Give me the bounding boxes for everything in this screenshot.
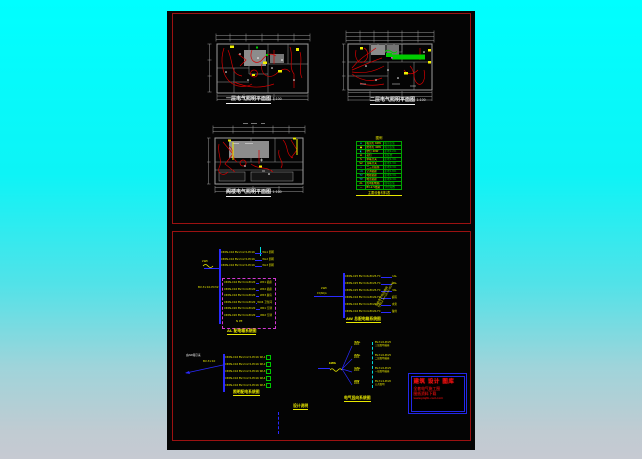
circuit-row: C65N-C16 BV-3×2.5-PC16WL3 照明 xyxy=(221,263,274,269)
circuit-tag: 1AL xyxy=(392,276,397,279)
circuit-tag: WK2 空调 xyxy=(260,315,272,318)
branch-meter: kWh xyxy=(354,357,369,360)
riser-branch: 3ALkWh xyxy=(354,341,369,347)
circuit-spec: C65N-C16 BV-3×4-PC20 xyxy=(224,282,255,285)
circuit-row: C65N-C16 BV-2×2.5-PC16WL1 照明 xyxy=(221,250,274,256)
circuit-row: C65N-C16 BV-3×2.5-PC16WL4 xyxy=(225,376,271,382)
plan3-caption-text: 阁楼电气照明平面图 xyxy=(226,189,271,197)
circuit-spec: C65N-C16 BV-2×2.5-PC16 xyxy=(221,259,255,262)
breaker-symbol xyxy=(202,262,216,268)
circuit-tag: WL3 照明 xyxy=(262,265,274,268)
riser-branch: 2ALkWh xyxy=(354,354,369,360)
circuit-row: C65N-C16 BV-3×4-PC20WX1 插座 xyxy=(224,280,272,286)
legend-name: 吸顶灯 60W xyxy=(366,141,384,145)
branch-desc: BV-3×4-PC20公共照明 xyxy=(375,380,398,386)
circuit-spec: C65N-C16 BV-3×4-PC20-FC xyxy=(345,311,381,314)
panel3-caption: 照明配电系统图 xyxy=(233,390,260,396)
circuit-tag: WX4 卫生间 xyxy=(257,302,272,305)
plan3-caption: 阁楼电气照明平面图1:100 xyxy=(226,189,282,195)
panel4-caption: 电气竖向系统图 xyxy=(344,396,371,402)
circuit-tag: WL3 xyxy=(260,371,266,374)
panel2-caption: AW 总配电箱系统图 xyxy=(346,317,381,323)
wall-lines xyxy=(207,126,305,194)
circuit-spec: C65N-C16 BV-3×4-PC20-FC xyxy=(345,297,381,300)
branch-desc: BV-3×6-PC25三层照明插座 xyxy=(375,341,398,347)
circuit-row: C65N-C16 BV-3×4-PC20WX4 卫生间 xyxy=(224,300,272,306)
circuit-tag: 庭院 xyxy=(392,297,397,300)
branch-desc: BV-3×6-PC25二层照明插座 xyxy=(375,354,398,360)
circuit-row: C65N-C20 BV-3×4-PC20WK2 空调 xyxy=(224,313,272,319)
incoming-line xyxy=(314,296,343,297)
feeder-note-yellow: BV-3×10 xyxy=(203,360,215,363)
riser-branch: AWkWh xyxy=(354,380,369,386)
circuit-row: C65N-C16 BV-2×2.5-PC16WL2 照明 xyxy=(221,257,274,263)
legend-table-block: 图例 ⊕吸顶灯 60W吸顶安装 ●防水灯 40W吸顶安装 ◐壁灯 40W距地2.… xyxy=(356,136,402,196)
circuit-tag: WL2 xyxy=(260,364,266,367)
circuit-spec: C65N-C25 BV-3×6-PC25-FC xyxy=(345,290,381,293)
circuit-row: C65N-C16 BV-3×4-PC20-FC庭院 xyxy=(345,295,397,301)
circuit-spec: C65N-C25 BV-3×6-PC25-FC xyxy=(345,283,381,286)
circuit-spec: C65N-C25 BV-3×6-PC25-FC xyxy=(345,276,381,279)
circuit-row: C65N-C16 BV-3×4-PC20WX2 插座 xyxy=(224,287,272,293)
legend-symbol: — xyxy=(357,185,366,189)
circuit-tag: WL2 照明 xyxy=(262,259,274,262)
meter-label: kWh xyxy=(321,287,327,290)
circuit-spec: C65N-C16 BV-3×4-PC20 xyxy=(224,295,255,298)
plan1-caption-text: 一层电气照明平面图 xyxy=(226,96,271,104)
legend-table: ⊕吸顶灯 60W吸顶安装 ●防水灯 40W吸顶安装 ◐壁灯 40W距地2.2m … xyxy=(356,141,402,190)
circuit-line xyxy=(255,260,262,261)
cad-viewer-screen: 一层电气照明平面图1:100 xyxy=(0,0,642,459)
circuit-line xyxy=(381,277,392,278)
circuit-spec: C65N-C16 BV-3×2.5-PC16 xyxy=(225,385,259,388)
panel1-caption: AL 配电箱系统图 xyxy=(227,329,256,335)
legend-caption: 主要设备材料表 xyxy=(356,191,402,196)
branch-lines xyxy=(330,340,354,390)
branch-desc: BV-3×6-PC25一层照明插座 xyxy=(375,367,398,373)
circuit-tag: WL1 照明 xyxy=(262,252,274,255)
plan2-caption-text: 二层电气照明平面图 xyxy=(370,97,415,105)
circuit-row: C65N-C20 BV-3×4-PC20WK1 空调 xyxy=(224,306,272,312)
plan1-scale: 1:100 xyxy=(273,97,282,101)
circuit-spec: C65N-C16 BV-2×2.5-PC16 xyxy=(225,371,259,374)
circuit-tag: WL4 xyxy=(260,378,266,381)
riser-branch: 1ALkWh xyxy=(354,367,369,373)
circuit-row: C65N-C16 BV-3×4-PC20-FC水泵 xyxy=(345,302,397,308)
circuit-line xyxy=(255,253,262,254)
panel-aw-system: kWh 15(60)A C65N-C25 BV-3×6-PC25-FC1AL C… xyxy=(312,262,410,324)
circuit-spec: C65N-C16 BV-2×2.5-PC16 xyxy=(221,252,255,255)
circuit-tag: 3AL xyxy=(392,290,397,293)
legend-name: BV-2.5线路 xyxy=(366,185,384,189)
load-box xyxy=(266,369,271,374)
circuit-tag: WX1 插座 xyxy=(260,282,272,285)
legend-name: 防水灯 40W xyxy=(366,145,384,149)
circuit-line xyxy=(256,309,260,310)
circuit-tag: WL1 xyxy=(260,357,266,360)
circuit-line xyxy=(256,283,260,284)
stamp-title: 建筑 设计 图库 xyxy=(414,379,462,386)
branch-desc-line2: 三层照明插座 xyxy=(375,344,398,347)
riser-dashed-bus xyxy=(372,342,373,388)
load-box xyxy=(266,376,271,381)
circuit-spec: C65N-C20 BV-3×4-PC20 xyxy=(224,315,255,318)
circuit-tag: 水泵 xyxy=(392,304,397,307)
incoming-line xyxy=(204,268,219,269)
panel-riser-system: kWh 3ALkWh 2ALkWh 1ALkWh AWkWh BV-3×6-PC… xyxy=(316,338,398,404)
circuit-line xyxy=(256,296,260,297)
branch-meter: kWh xyxy=(354,370,369,373)
branch-desc-line2: 二层照明插座 xyxy=(375,357,398,360)
circuit-tag: 备用 xyxy=(392,311,397,314)
stamp-inner-border: 建筑 设计 图库 全套电气施工图 图纸资料下载 www.jzsjtk-cad.c… xyxy=(411,376,465,412)
floorplan-2 xyxy=(340,28,440,108)
circuit-spec: C65N-C20 BV-3×4-PC20 xyxy=(224,308,255,311)
circuit-spec: C65N-C16 BV-3×2.5-PC16 xyxy=(225,378,259,381)
circuit-tag: WK1 空调 xyxy=(260,308,272,311)
load-box xyxy=(266,355,271,360)
circuit-row: C65N-C16 BV-2×2.5-PC16WL3 xyxy=(225,369,271,375)
circuit-spec: C65N-C16 BV-2×2.5-PC16 xyxy=(225,364,259,367)
circuit-spec: C65N-C16 BV-2×2.5-PC16 xyxy=(225,357,259,360)
circuit-row: C65N-C16 BV-2×2.5-PC16WL1 xyxy=(225,355,271,361)
branch-desc-line2: 公共照明 xyxy=(375,383,398,386)
circuit-spec: C65N-C16 BV-3×2.5-PC16 xyxy=(221,265,255,268)
notes-caption: 设计说明 xyxy=(293,404,308,410)
watermark-stamp: 建筑 设计 图库 全套电气施工图 图纸资料下载 www.jzsjtk-cad.c… xyxy=(408,373,467,414)
circuit-tag: WL5 xyxy=(260,385,266,388)
stamp-url: www.jzsjtk-cad.com xyxy=(414,396,462,401)
blue-dashed-line xyxy=(278,412,279,434)
plan2-scale: 1:100 xyxy=(417,98,426,102)
circuit-tag: WX3 厨房 xyxy=(260,295,272,298)
legend-row: —BV-2.5线路穿管暗敷 xyxy=(357,185,402,189)
circuit-row: C65N-C16 BV-3×4-PC20-FC备用 xyxy=(345,309,397,315)
circuit-row: C65N-C16 BV-3×4-PC20WX3 厨房 xyxy=(224,293,272,299)
load-box xyxy=(266,383,271,388)
branch-meter: kWh xyxy=(354,344,369,347)
circuit-tag: WX2 插座 xyxy=(260,289,272,292)
box-note: N PE xyxy=(236,320,242,323)
circuit-line xyxy=(381,312,391,313)
plan2-caption: 二层电气照明平面图1:100 xyxy=(370,97,426,103)
circuit-line xyxy=(256,316,260,317)
legend-title: 图例 xyxy=(356,136,402,140)
branch-desc-line2: 一层照明插座 xyxy=(375,370,398,373)
branch-meter: kWh xyxy=(354,383,369,386)
circuit-row: C65N-C16 BV-2×2.5-PC16WL2 xyxy=(225,362,271,368)
feeder-note-white: 由AW箱引来 xyxy=(186,354,201,357)
plan3-scale: 1:100 xyxy=(273,190,282,194)
meter-rating: 15(60)A xyxy=(317,292,327,295)
incoming-spec: BV-3×10-PC32 xyxy=(198,286,218,289)
wall-lines xyxy=(342,31,434,102)
circuit-spec: C65N-C16 BV-3×4-PC20 xyxy=(224,302,255,305)
panel-lighting-system: 由AW箱引来 BV-3×10 C65N-C16 BV-2×2.5-PC16WL1… xyxy=(183,350,283,400)
circuit-line xyxy=(255,266,262,267)
panel-al-system: kWh BV-3×10-PC32 C65N-C16 BV-2×2.5-PC16W… xyxy=(196,240,282,338)
circuit-spec: C65N-C16 BV-3×4-PC20 xyxy=(224,289,255,292)
circuit-line xyxy=(256,290,260,291)
plan1-caption: 一层电气照明平面图1:100 xyxy=(226,96,282,102)
load-box xyxy=(266,362,271,367)
legend-spec: 穿管暗敷 xyxy=(384,185,402,189)
